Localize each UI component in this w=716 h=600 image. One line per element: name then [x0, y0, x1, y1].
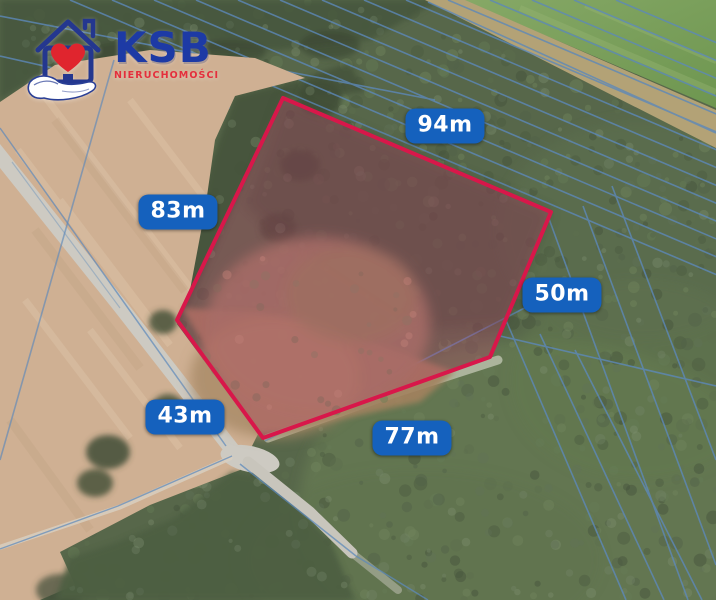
house-heart-in-hand-icon [24, 8, 112, 104]
dimension-label-bottom: 77m [372, 421, 451, 456]
dimension-label-left: 83m [138, 195, 217, 230]
dimension-label-bottom-left: 43m [145, 400, 224, 435]
dimension-label-top: 94m [405, 109, 484, 144]
dimension-label-right: 50m [522, 278, 601, 313]
agency-logo: KSB NIERUCHOMOŚCI [24, 8, 219, 104]
aerial-map: 94m 83m 50m 43m 77m KSB NIERUCHOMOŚCI [0, 0, 716, 600]
brand-subtitle: NIERUCHOMOŚCI [114, 70, 219, 81]
brand-name: KSB [114, 30, 219, 66]
